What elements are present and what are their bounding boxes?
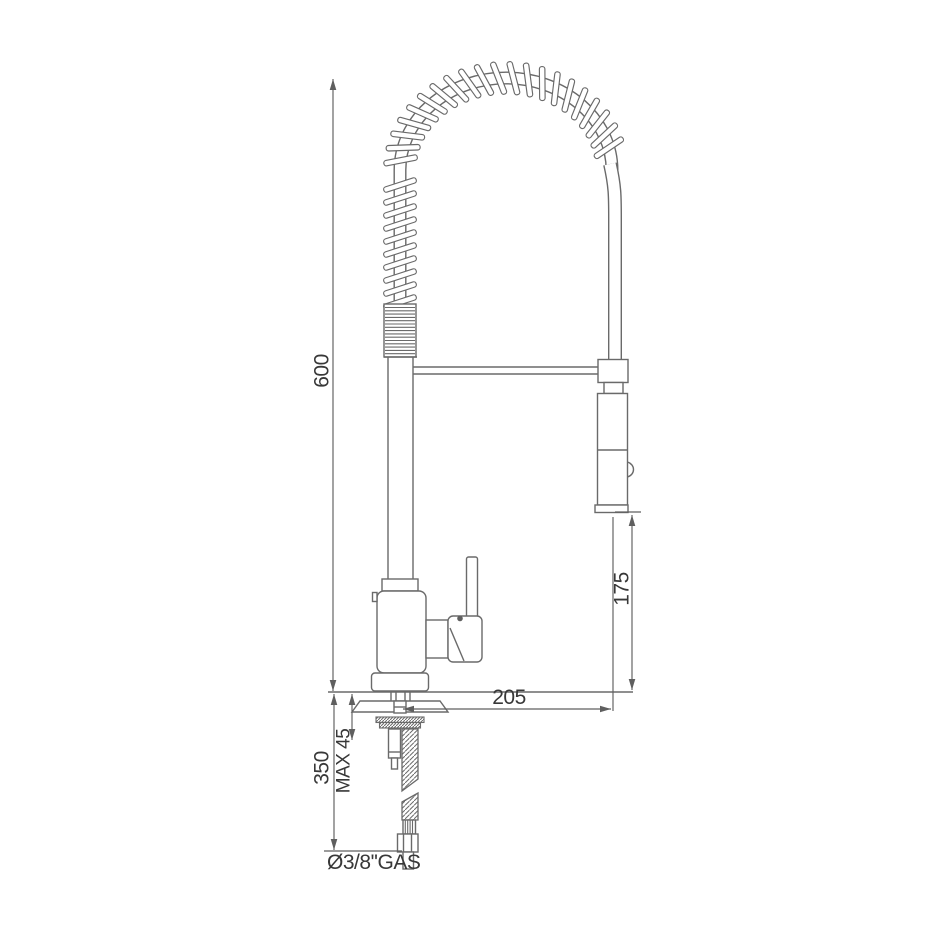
body-block [377,591,426,673]
spray-body [598,394,628,506]
mounting-washer-1 [376,717,424,723]
dim-label-supply-connection: Ø3/8''GAS [327,851,421,874]
spray-button [628,462,634,477]
handle-mount [426,620,448,658]
riser-base-collar [382,579,418,591]
base-plate [372,673,429,691]
mounting-stud-tip [392,758,398,769]
spray-holder-block [598,360,628,383]
spring-coils [383,61,624,310]
spray-support-arm [413,367,600,374]
spray-collar [604,383,623,394]
dim-label-overall-height: 600 [311,354,334,388]
faucet-technical-drawing: 600 350 MAX 45 205 175 Ø3/8''GAS [0,0,950,950]
spring-hose-arch [383,61,624,361]
riser-pipe [384,357,417,579]
under-deck-parts [352,692,448,869]
dim-label-spout-reach: 205 [492,686,526,709]
temperature-indicator-dot [457,616,463,622]
dim-label-max-deck-thickness: MAX 45 [334,729,355,794]
dim-label-under-deck-length: 350 [311,751,334,785]
spray-face [595,505,628,513]
dimensions: 600 350 MAX 45 205 175 Ø3/8''GAS [311,79,642,874]
riser-and-arm [384,357,600,579]
mounting-stud [389,729,401,758]
body-notch [373,593,378,602]
spring-closed-coil-lines [385,308,415,354]
mounting-washer-2 [380,723,421,729]
deck-pass-through [391,692,410,701]
supply-hose-upper [402,729,418,791]
dim-label-spray-outlet-height: 175 [611,572,634,606]
connection-nut [398,834,419,852]
lever-handle [467,557,478,621]
handle-housing [448,616,482,662]
spray-head [595,360,634,513]
drawing-canvas: 600 350 MAX 45 205 175 Ø3/8''GAS [0,0,950,950]
supply-hose-lower [402,793,418,820]
